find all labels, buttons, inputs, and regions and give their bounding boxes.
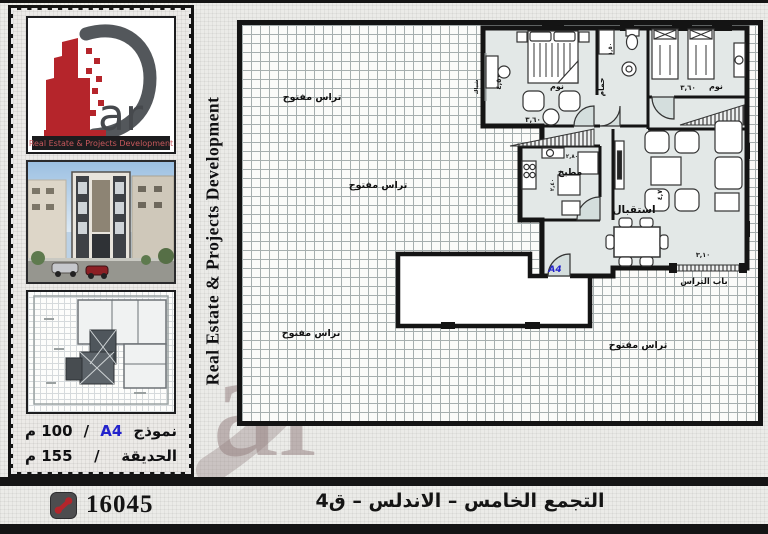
- wall-tick: [441, 322, 455, 329]
- terrace-door-label: باب التراس: [680, 277, 727, 287]
- dim-label: ٣,٦٠: [680, 84, 695, 92]
- model-info-row-1: نموذج A4 / 100 م: [19, 418, 183, 443]
- garden-label: الحديقة: [121, 447, 177, 465]
- room-label-bedroom: نوم: [709, 82, 723, 91]
- dim-label: ٣,١٠: [696, 251, 710, 259]
- floorplan-graphic: تراس مفتوح تراس مفتوح تراس مفتوح تراس مف…: [242, 25, 758, 421]
- room-label-kitchen: مطبخ: [558, 168, 583, 178]
- mini-floorplan: [26, 290, 176, 414]
- model-info-row-2: الحديقة / 155 م: [19, 443, 183, 468]
- page-border-top: [0, 0, 768, 3]
- logo-band-text: Real Estate & Projects Development: [29, 139, 173, 148]
- room-label-bedroom: نوم: [550, 82, 564, 91]
- phone-icon: [50, 492, 77, 519]
- dim-label: ٢,٤٠: [550, 179, 556, 191]
- model-area-value: 100 م: [25, 422, 73, 440]
- model-label: نموذج: [133, 422, 177, 440]
- room-label-bathroom: حمام: [597, 78, 606, 97]
- vertical-brand-strip: Real Estate & Projects Development: [194, 4, 232, 477]
- phone-number: 16045: [86, 491, 154, 519]
- door-jamb: [739, 263, 747, 273]
- dim-label: ٣,٦٠: [525, 116, 540, 124]
- building-photo-graphic: [28, 162, 174, 282]
- entrance-gap: [548, 277, 570, 281]
- logo-building-icon: [44, 38, 106, 136]
- dim-label: ٤,٧: [656, 190, 664, 200]
- unit-code-label: A4: [547, 265, 561, 275]
- building-photo: [26, 160, 176, 284]
- footer-divider-bar: [0, 477, 768, 486]
- room-label-reception: استقبال: [612, 204, 655, 216]
- vertical-brand-text: Real Estate & Projects Development: [203, 96, 224, 385]
- page-border-bottom: [0, 524, 768, 534]
- floorplan-canvas: تراس مفتوح تراس مفتوح تراس مفتوح تراس مف…: [237, 20, 763, 426]
- project-location-caption: التجمع الخامس – الاندلس – ق4: [250, 490, 670, 512]
- dar-logo-graphic: ar Real Estate & Projects Development: [28, 18, 174, 152]
- company-logo: ar Real Estate & Projects Development: [26, 16, 176, 154]
- sidebar-panel: ar Real Estate & Projects Development: [8, 5, 194, 477]
- terrace-sliding-door: [676, 265, 740, 271]
- terrace-label: تراس مفتوح: [283, 92, 342, 103]
- terrace-label: تراس مفتوح: [282, 328, 341, 339]
- terrace-label: تراس مفتوح: [349, 180, 408, 191]
- dim-label: ١,٥٠: [608, 43, 614, 55]
- model-info: نموذج A4 / 100 م الحديقة / 155 م: [19, 418, 183, 470]
- window-label: شباك: [474, 80, 480, 95]
- terrace-label: تراس مفتوح: [609, 340, 668, 351]
- phone-contact: 16045: [50, 489, 154, 521]
- logo-ar-text: ar: [98, 90, 144, 141]
- slash-separator: /: [94, 447, 99, 465]
- garden-area-value: 155 م: [25, 447, 73, 465]
- brochure-page: ar ar Real Estate & Projects Development: [0, 0, 768, 534]
- slash-separator: /: [84, 422, 89, 440]
- door-jamb: [669, 263, 677, 273]
- mini-floorplan-graphic: [28, 292, 174, 412]
- dim-label: ٢,٨٠: [566, 154, 578, 160]
- wall-tick: [525, 322, 540, 329]
- model-code: A4: [100, 422, 122, 440]
- dim-label: ٤,٥٠: [495, 74, 503, 89]
